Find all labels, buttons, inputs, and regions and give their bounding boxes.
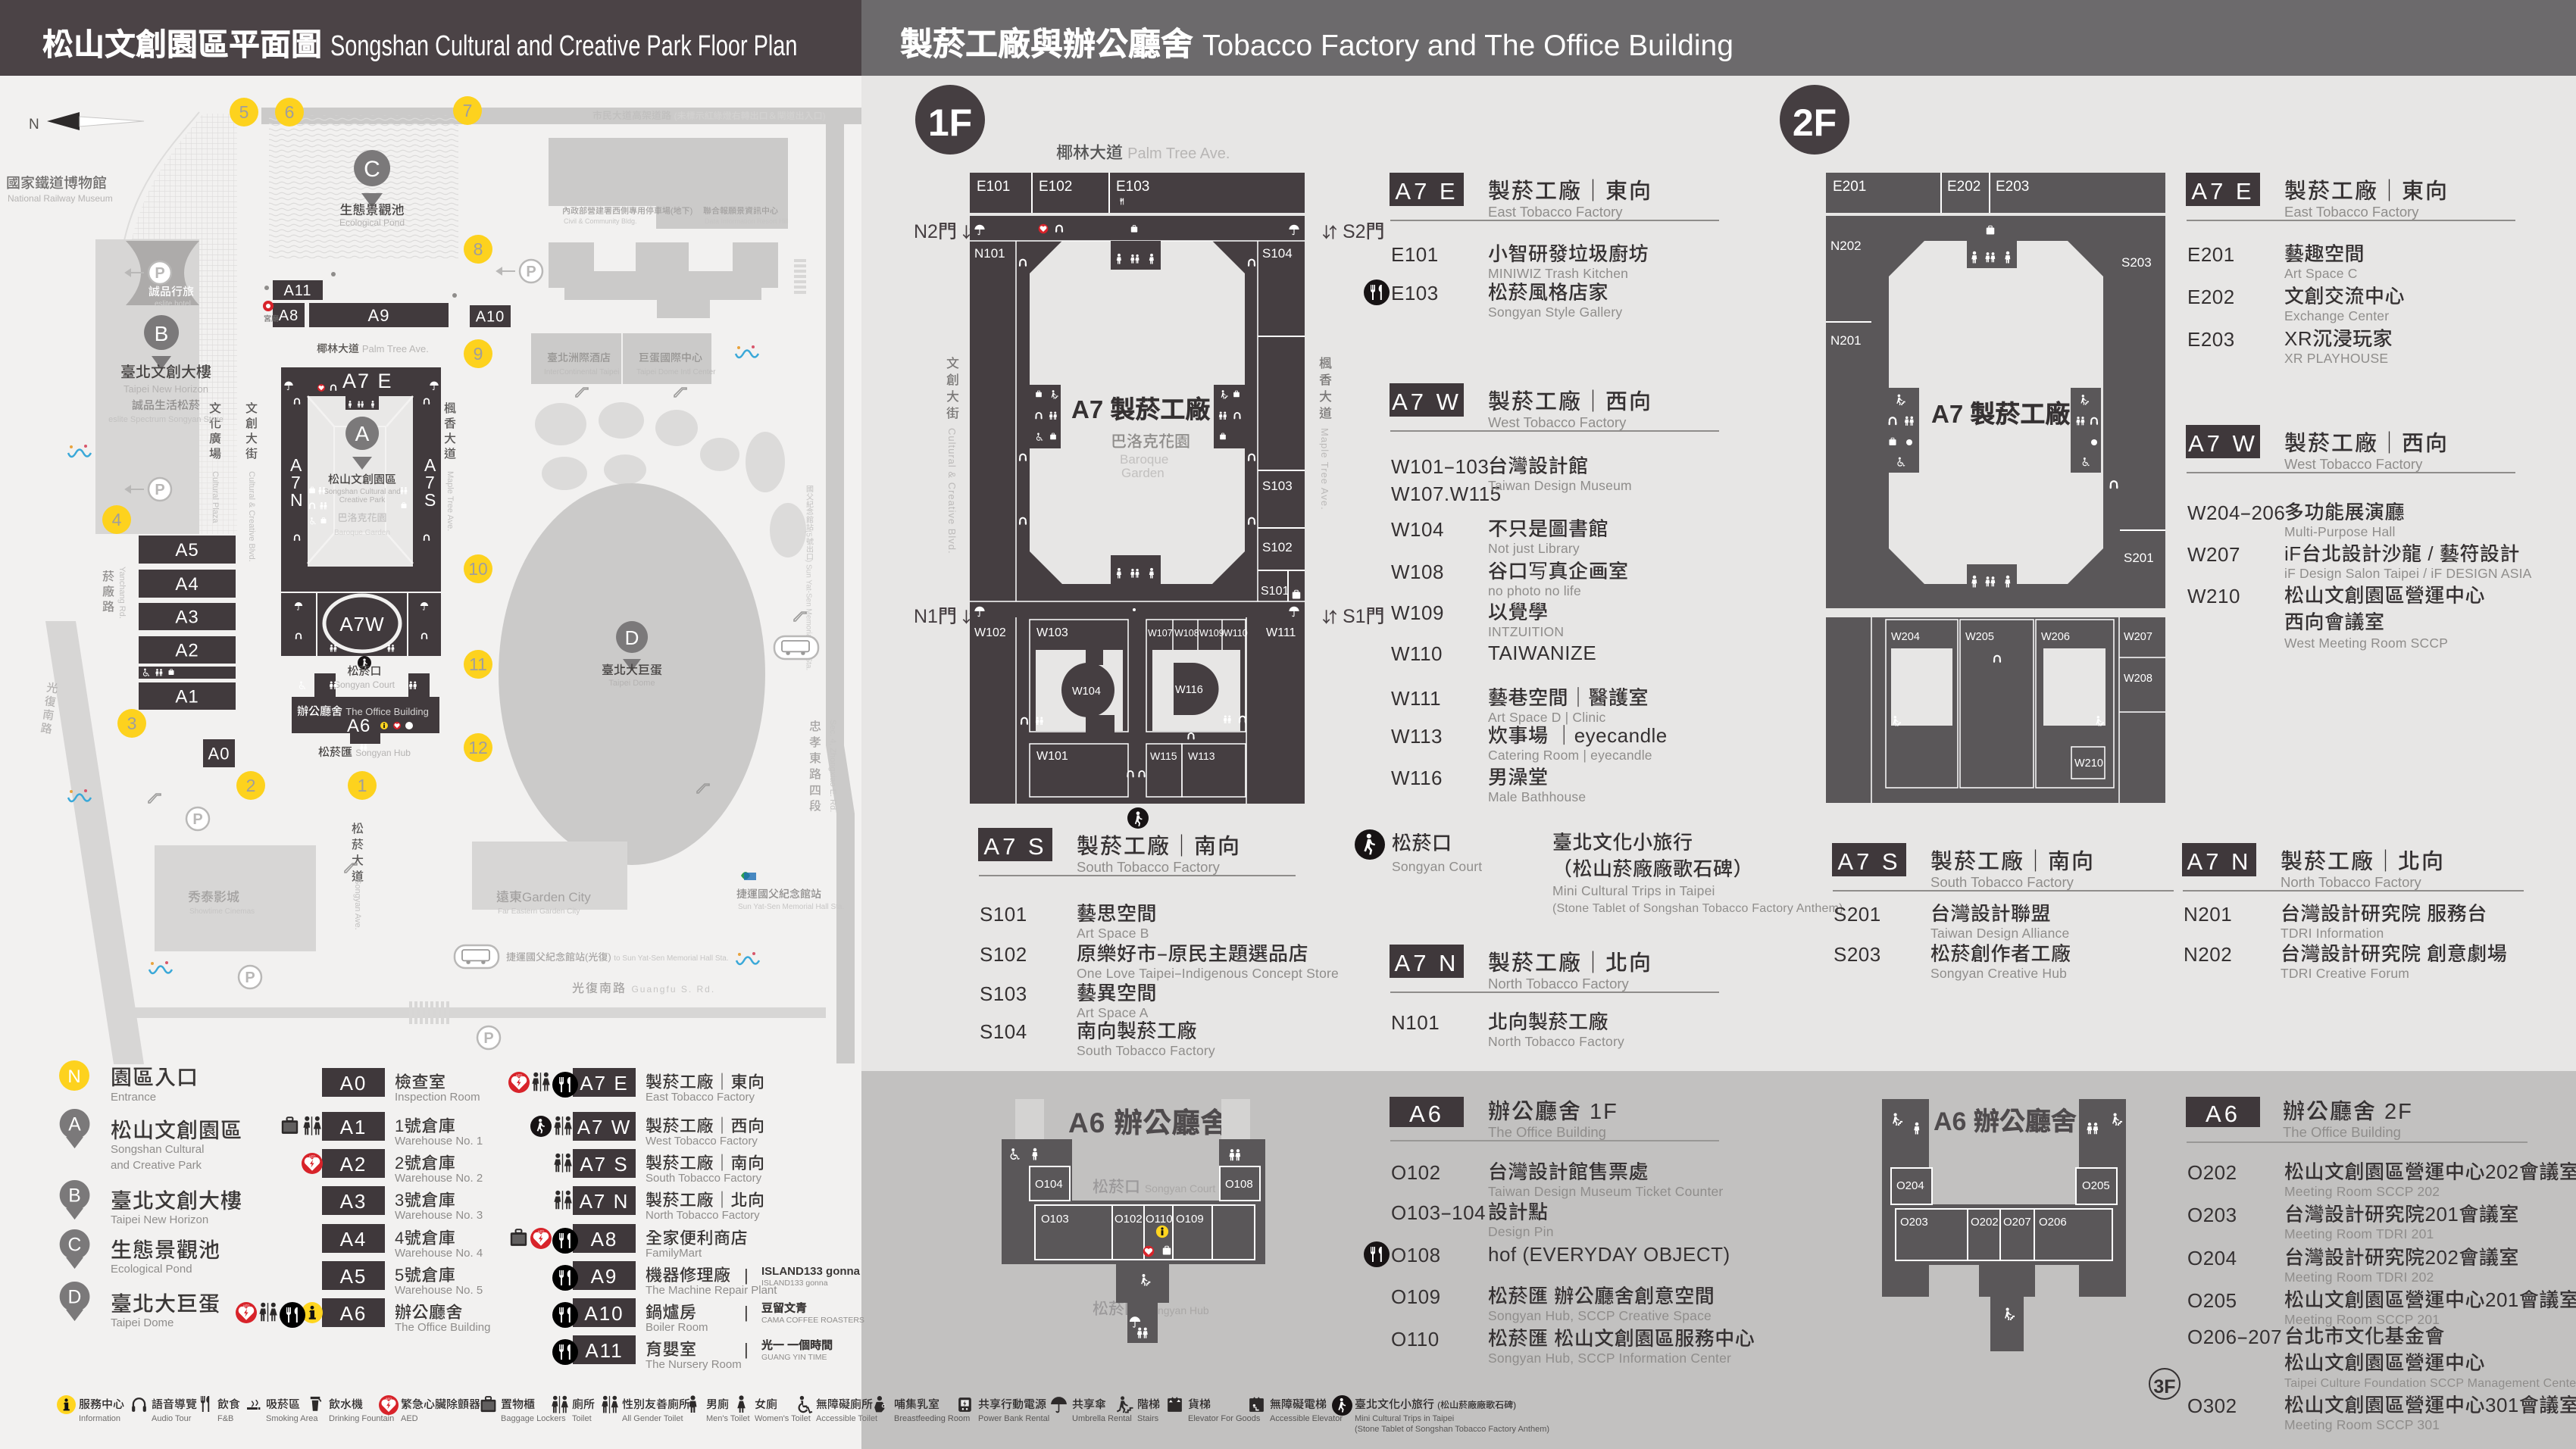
- svg-text:S102: S102: [1262, 536, 1293, 555]
- svg-text:P: P: [245, 965, 255, 987]
- svg-text:7: 7: [463, 96, 473, 122]
- svg-text:A11: A11: [283, 278, 311, 300]
- svg-text:W207: W207: [2124, 628, 2152, 644]
- svg-text:O207: O207: [2003, 1213, 2031, 1229]
- svg-text:AED: AED: [516, 1074, 523, 1078]
- svg-text:S104: S104: [1262, 242, 1293, 261]
- svg-text:A7W: A7W: [339, 609, 384, 637]
- svg-text:A4: A4: [175, 569, 199, 595]
- svg-text:W115: W115: [1150, 748, 1177, 764]
- svg-text:S101: S101: [1261, 580, 1289, 598]
- svg-text:W210: W210: [2074, 754, 2103, 770]
- svg-text:楓香大道: 楓香大道: [441, 401, 459, 462]
- svg-text:P: P: [483, 1026, 493, 1048]
- svg-text:W116: W116: [1175, 681, 1203, 697]
- svg-text:S103: S103: [1262, 475, 1293, 494]
- svg-text:A: A: [355, 417, 370, 448]
- svg-text:國家鐵道博物館: 國家鐵道博物館: [6, 172, 107, 192]
- svg-text:W101: W101: [1036, 745, 1068, 764]
- svg-text:內政部營建署西側專用停車場(地下): 內政部營建署西側專用停車場(地下): [562, 205, 692, 217]
- svg-text:Baroque Garden: Baroque Garden: [334, 526, 390, 537]
- svg-text:N: N: [290, 486, 303, 511]
- svg-text:O109: O109: [1176, 1210, 1204, 1226]
- svg-text:臺北大巨蛋: 臺北大巨蛋: [602, 660, 662, 678]
- svg-text:市民大道高架道路 (未標示紅綠燈右轉出口＆閘道出入口): 市民大道高架道路 (未標示紅綠燈右轉出口＆閘道出入口): [592, 108, 826, 122]
- svg-text:O206: O206: [2039, 1213, 2067, 1229]
- svg-text:Taipei Dome: Taipei Dome: [608, 676, 655, 689]
- svg-text:2: 2: [246, 771, 256, 797]
- svg-text:6: 6: [285, 98, 295, 123]
- svg-text:P: P: [155, 261, 164, 283]
- svg-text:D: D: [68, 1287, 82, 1307]
- svg-text:P: P: [155, 477, 164, 499]
- svg-text:A: A: [68, 1114, 81, 1135]
- svg-text:5: 5: [239, 98, 249, 123]
- svg-text:Creative Park: Creative Park: [339, 493, 386, 504]
- svg-text:Data Information Resort Hill: Data Information Resort Hill: [705, 216, 789, 226]
- svg-text:A2: A2: [175, 635, 199, 662]
- svg-text:松菸匯 Songyan Hub: 松菸匯 Songyan Hub: [318, 744, 411, 760]
- svg-text:A1: A1: [175, 682, 199, 708]
- svg-text:8: 8: [474, 235, 483, 261]
- svg-text:Maple Tree Ave.: Maple Tree Ave.: [445, 471, 457, 531]
- svg-text:AED: AED: [538, 1230, 545, 1234]
- svg-text:W208: W208: [2124, 670, 2152, 685]
- svg-text:W113: W113: [1188, 748, 1215, 764]
- svg-text:W206: W206: [2041, 628, 2070, 644]
- svg-text:E103: E103: [1116, 175, 1149, 195]
- svg-text:S203: S203: [2121, 251, 2152, 270]
- svg-text:W108: W108: [1174, 625, 1199, 639]
- svg-text:Ecological Pond: Ecological Pond: [339, 216, 405, 229]
- svg-text:Sun Yat-Sen Memorial Hall Sta.: Sun Yat-Sen Memorial Hall Sta.: [738, 900, 844, 911]
- svg-text:C: C: [68, 1235, 82, 1255]
- svg-text:臺北洲際酒店: 臺北洲際酒店: [547, 350, 611, 365]
- svg-text:10: 10: [468, 554, 488, 580]
- svg-text:W109: W109: [1199, 625, 1224, 639]
- svg-text:eslite Spectrum Songyan Store: eslite Spectrum Songyan Store: [108, 413, 224, 425]
- svg-text:A9: A9: [368, 302, 390, 326]
- svg-text:椰林大道 Palm Tree Ave.: 椰林大道 Palm Tree Ave.: [317, 341, 429, 356]
- svg-text:Songyan Court: Songyan Court: [334, 678, 395, 691]
- svg-text:S: S: [424, 486, 436, 511]
- svg-text:松菸口: 松菸口: [347, 663, 381, 679]
- svg-text:Showtime Cinemas: Showtime Cinemas: [189, 904, 255, 916]
- svg-text:遠東Garden City: 遠東Garden City: [496, 886, 591, 905]
- svg-text:O108: O108: [1225, 1176, 1253, 1191]
- svg-text:W102: W102: [974, 622, 1006, 640]
- svg-text:Sec. 4, Zhongxiao E. Rd.: Sec. 4, Zhongxiao E. Rd.: [827, 720, 839, 812]
- svg-text:B: B: [155, 317, 169, 348]
- svg-text:W111: W111: [1266, 622, 1296, 640]
- svg-text:O110: O110: [1146, 1210, 1173, 1226]
- svg-text:National Railway Museum: National Railway Museum: [8, 192, 113, 205]
- svg-text:忠孝東路四段: 忠孝東路四段: [806, 720, 824, 815]
- svg-text:1: 1: [358, 771, 367, 797]
- svg-text:AED: AED: [309, 1155, 316, 1159]
- svg-text:捷運國父紀念館站: 捷運國父紀念館站: [736, 886, 821, 901]
- svg-text:W110: W110: [1224, 625, 1248, 639]
- svg-text:宮廟: 宮廟: [264, 312, 279, 323]
- svg-text:AED: AED: [386, 1397, 392, 1401]
- svg-text:P: P: [526, 259, 536, 281]
- svg-text:A0: A0: [208, 740, 230, 764]
- svg-text:O205: O205: [2082, 1177, 2110, 1193]
- svg-text:N: N: [29, 113, 39, 133]
- svg-text:W205: W205: [1965, 628, 1994, 644]
- svg-text:E203: E203: [1996, 175, 2029, 195]
- svg-text:S201: S201: [2124, 547, 2154, 566]
- svg-text:巨蛋國際中心: 巨蛋國際中心: [639, 350, 702, 365]
- svg-text:E201: E201: [1833, 175, 1866, 195]
- svg-text:W104: W104: [1072, 682, 1101, 698]
- svg-text:巴洛克花園: 巴洛克花園: [337, 510, 386, 524]
- svg-text:12: 12: [468, 733, 488, 759]
- svg-text:3: 3: [127, 709, 137, 735]
- svg-text:W204: W204: [1891, 628, 1920, 644]
- svg-text:A10: A10: [476, 304, 505, 326]
- svg-text:C: C: [364, 150, 380, 183]
- svg-text:N202: N202: [1830, 235, 1862, 254]
- svg-text:菸廠路: 菸廠路: [99, 570, 117, 615]
- svg-text:Yanchang Rd.: Yanchang Rd.: [117, 567, 129, 619]
- svg-text:Cultural Plaza: Cultural Plaza: [210, 471, 222, 523]
- svg-text:O103: O103: [1041, 1210, 1069, 1226]
- svg-text:P: P: [192, 807, 202, 829]
- svg-text:O202: O202: [1971, 1213, 1999, 1229]
- svg-text:B: B: [68, 1185, 81, 1206]
- svg-text:eslite hotel: eslite hotel: [155, 297, 191, 308]
- svg-text:W107: W107: [1148, 625, 1173, 639]
- svg-text:A6: A6: [347, 710, 370, 737]
- svg-text:捷運國父紀念館站(光復) to Sun Yat-Sen Me: 捷運國父紀念館站(光復) to Sun Yat-Sen Memorial Hal…: [506, 949, 729, 963]
- svg-text:Taipei New Horizon: Taipei New Horizon: [123, 381, 208, 395]
- svg-text:誠品生活松菸: 誠品生活松菸: [132, 397, 200, 413]
- svg-text:Songyan Ave.: Songyan Ave.: [352, 879, 364, 930]
- svg-text:A7 E: A7 E: [342, 364, 393, 394]
- svg-text:E102: E102: [1039, 175, 1072, 195]
- svg-text:N201: N201: [1830, 329, 1862, 348]
- svg-text:W103: W103: [1036, 622, 1068, 640]
- svg-text:松菸大道: 松菸大道: [349, 822, 367, 885]
- svg-text:Taipei Dome Intl Center: Taipei Dome Intl Center: [636, 365, 716, 376]
- svg-text:O203: O203: [1900, 1213, 1928, 1229]
- svg-text:A5: A5: [175, 535, 199, 561]
- svg-text:Far Eastern Garden City: Far Eastern Garden City: [498, 904, 580, 916]
- svg-text:A7 製菸工廠: A7 製菸工廠: [1071, 389, 1211, 426]
- svg-text:E202: E202: [1947, 175, 1980, 195]
- svg-text:A3: A3: [175, 602, 199, 629]
- svg-text:N101: N101: [974, 242, 1005, 261]
- svg-text:Cultural & Creative Blvd.: Cultural & Creative Blvd.: [246, 471, 258, 562]
- svg-text:臺北文創大樓: 臺北文創大樓: [120, 360, 211, 382]
- svg-text:O204: O204: [1896, 1177, 1924, 1193]
- svg-text:文創大街: 文創大街: [242, 401, 261, 462]
- svg-text:4: 4: [112, 505, 122, 531]
- svg-text:聯合報願景資訊中心: 聯合報願景資訊中心: [703, 205, 778, 217]
- svg-text:O102: O102: [1114, 1210, 1143, 1226]
- svg-text:11: 11: [469, 650, 487, 676]
- svg-text:文化廣場: 文化廣場: [206, 401, 224, 462]
- svg-text:AED: AED: [243, 1304, 250, 1308]
- svg-text:N: N: [67, 1066, 80, 1087]
- svg-text:Garden: Garden: [1121, 462, 1165, 481]
- svg-text:9: 9: [474, 339, 483, 365]
- svg-text:D: D: [625, 623, 639, 651]
- svg-text:A8: A8: [279, 303, 299, 325]
- svg-text:O104: O104: [1035, 1176, 1063, 1191]
- svg-text:InterContinental Taipei: InterContinental Taipei: [544, 365, 619, 376]
- svg-text:Civil & Community Bldg.: Civil & Community Bldg.: [564, 216, 637, 226]
- svg-text:E101: E101: [977, 175, 1010, 195]
- svg-text:秀泰影城: 秀泰影城: [188, 886, 239, 905]
- svg-text:A7 製菸工廠: A7 製菸工廠: [1931, 394, 2071, 430]
